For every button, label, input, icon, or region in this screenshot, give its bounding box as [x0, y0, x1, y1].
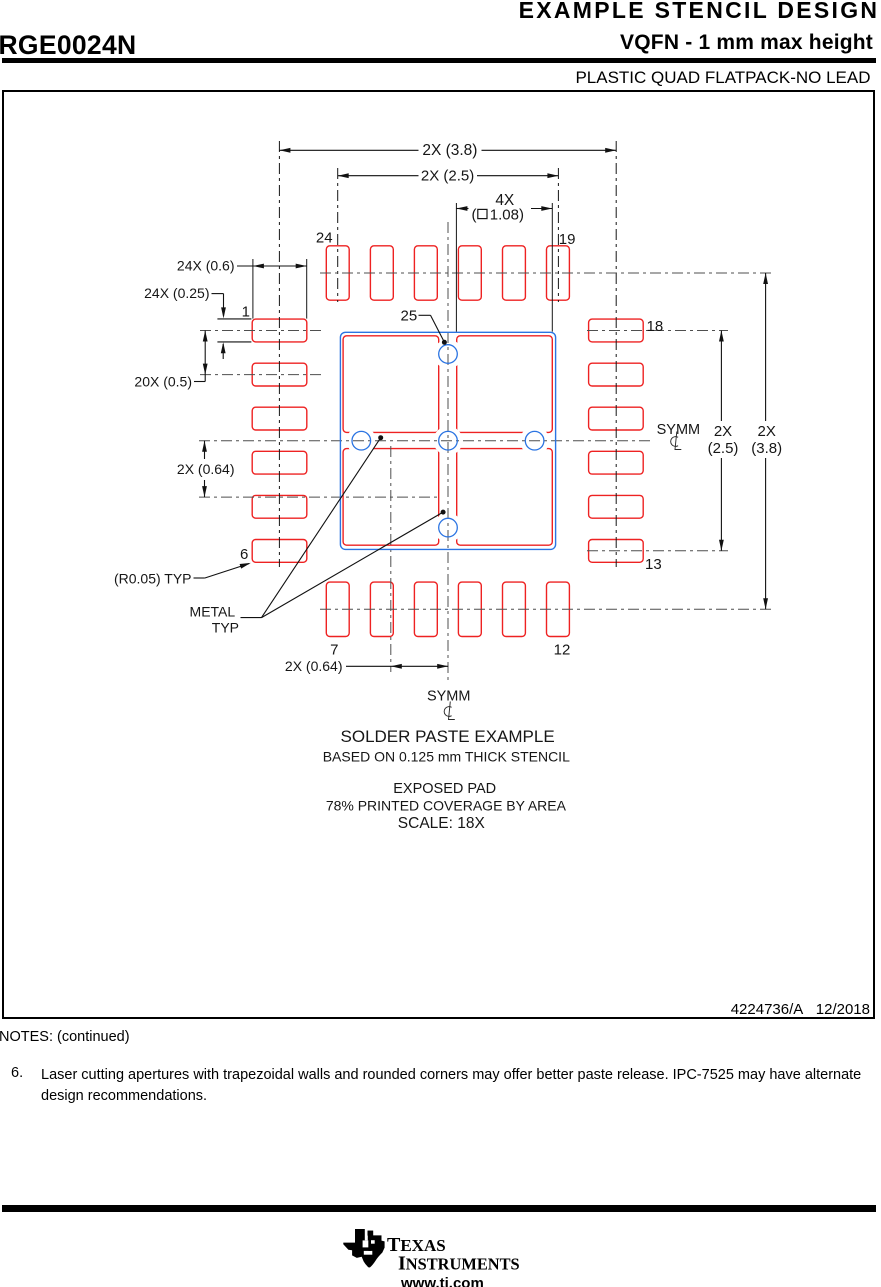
- svg-text:TEXAS: TEXAS: [387, 1234, 446, 1256]
- svg-text:INSTRUMENTS: INSTRUMENTS: [398, 1252, 520, 1274]
- svg-text:www.ti.com: www.ti.com: [400, 1275, 484, 1287]
